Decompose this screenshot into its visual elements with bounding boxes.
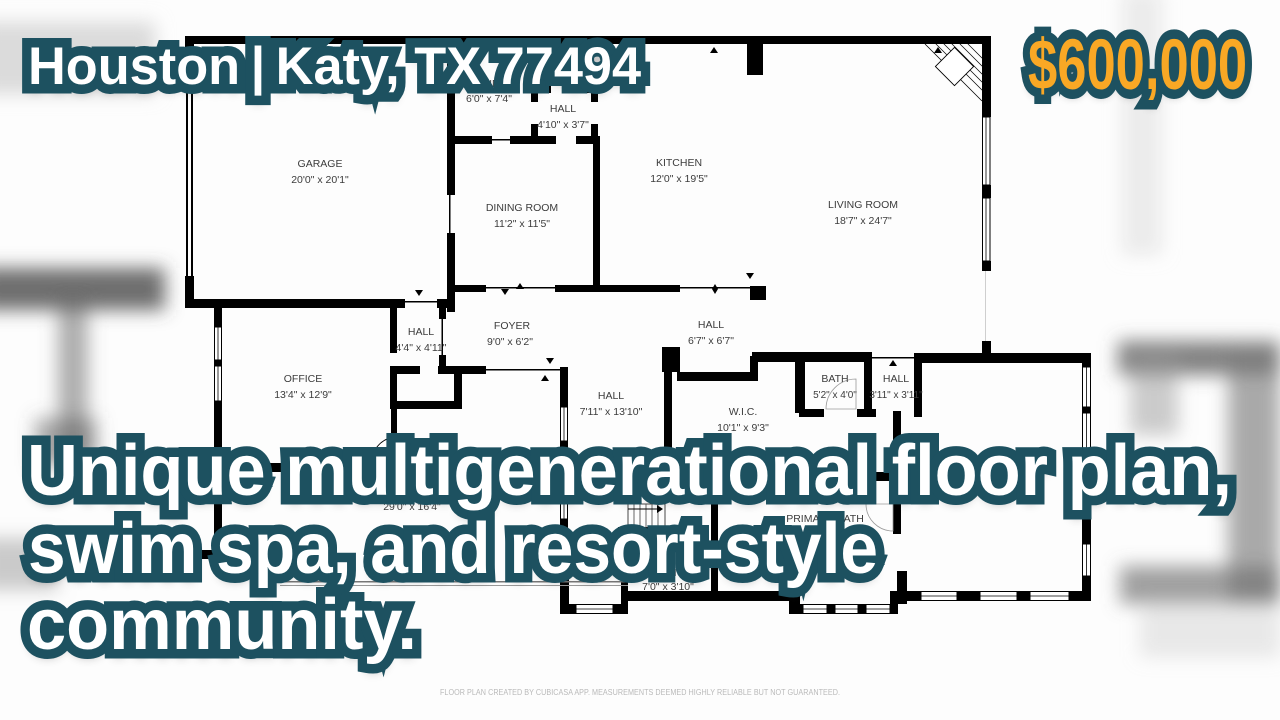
svg-text:9'0" x 6'2": 9'0" x 6'2" [487,336,533,348]
svg-text:4'4" x 4'11": 4'4" x 4'11" [396,342,447,354]
svg-text:6'7" x 6'7": 6'7" x 6'7" [688,335,734,347]
svg-text:7'11" x 13'10": 7'11" x 13'10" [580,406,643,418]
svg-text:FOYER: FOYER [494,320,531,332]
svg-text:18'7" x 24'7": 18'7" x 24'7" [834,215,892,227]
svg-text:HALL: HALL [408,326,434,338]
svg-text:3'11" x 3'11": 3'11" x 3'11" [869,390,923,401]
svg-text:OFFICE: OFFICE [284,373,323,385]
svg-text:HALL: HALL [598,390,624,402]
svg-text:5'2" x 4'0": 5'2" x 4'0" [813,390,857,401]
svg-text:BATH: BATH [821,373,848,385]
svg-text:11'2" x 11'5": 11'2" x 11'5" [494,218,550,230]
svg-text:KITCHEN: KITCHEN [656,157,702,169]
svg-text:20'0" x 20'1": 20'0" x 20'1" [291,174,349,186]
svg-text:12'0" x 19'5": 12'0" x 19'5" [650,173,708,185]
svg-text:GARAGE: GARAGE [298,158,343,170]
svg-text:4'10" x 3'7": 4'10" x 3'7" [537,119,589,131]
svg-text:13'4" x 12'9": 13'4" x 12'9" [274,389,332,401]
svg-text:W.I.C.: W.I.C. [729,406,758,418]
svg-text:HALL: HALL [698,319,724,331]
svg-text:LIVING ROOM: LIVING ROOM [828,199,898,211]
svg-text:HALL: HALL [550,103,576,115]
svg-text:HALL: HALL [883,373,909,385]
svg-text:DINING ROOM: DINING ROOM [486,202,558,214]
